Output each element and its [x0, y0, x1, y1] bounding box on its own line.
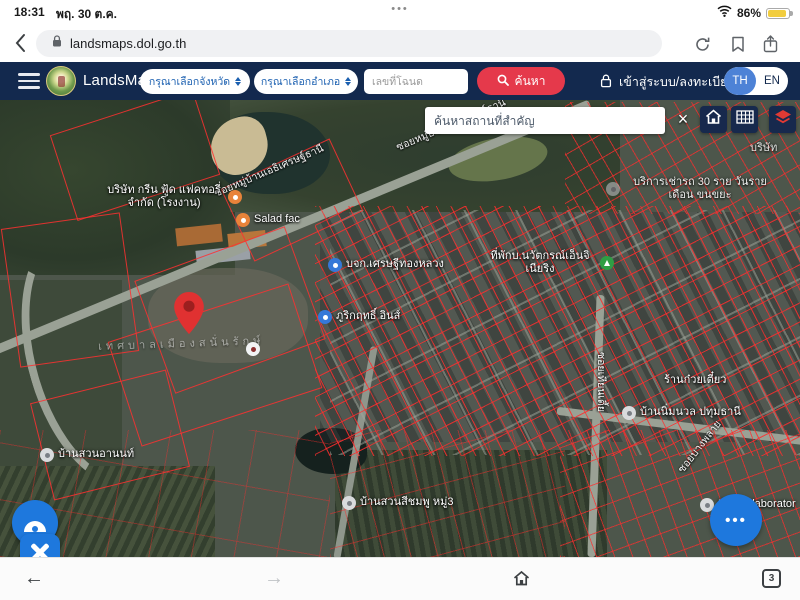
protractor-icon: [24, 521, 46, 532]
restaurant-poi-icon: [236, 213, 250, 227]
layers-icon: [774, 109, 792, 130]
poi-label: ที่พักบ.นวัตกรณ์เอ็นจิเนียริง: [484, 250, 596, 276]
home-extent-button[interactable]: [700, 106, 727, 133]
home-icon: [705, 109, 722, 130]
poi-salad-factory[interactable]: Salad fac: [236, 213, 300, 227]
back-chevron-icon[interactable]: [14, 33, 28, 53]
battery-percent: 86%: [737, 6, 761, 20]
bookmark-icon[interactable]: [728, 34, 748, 54]
lodging-poi-icon: [40, 448, 54, 462]
poi-label: ภูริกฤทธิ์ อินส์: [336, 310, 400, 323]
lodging-poi-icon: [342, 496, 356, 510]
district-select[interactable]: กรุณาเลือกอำเภอ: [254, 69, 358, 94]
poi-label: บจก.เศรษฐีทองหลวง: [346, 258, 444, 271]
poi-label: บริการเช่ารถ 30 ราย วันรายเดือน ขนขยะ: [624, 176, 776, 202]
wifi-icon: [717, 4, 732, 22]
screen: 18:31 พฤ. 30 ต.ค. ••• 86% landsmaps.dol.…: [0, 0, 800, 600]
business-poi-icon: [328, 258, 342, 272]
lang-en-button[interactable]: EN: [756, 67, 788, 95]
status-bar: 18:31 พฤ. 30 ต.ค. ••• 86%: [0, 0, 800, 24]
poi-rental-service[interactable]: บริการเช่ารถ 30 ราย วันรายเดือน ขนขยะ: [606, 176, 776, 202]
park-poi-icon: [600, 256, 614, 270]
grid-view-button[interactable]: [731, 106, 758, 133]
parcel-lines-overlay: [330, 430, 565, 557]
poi-label: บริษัท กรีน ฟู้ด แฟคทอรี่ จำกัด (โรงงาน): [104, 184, 224, 210]
status-time: 18:31: [14, 5, 45, 19]
deed-number-input[interactable]: [364, 69, 468, 94]
restaurant-poi-icon: [228, 190, 242, 204]
status-right-cluster: 86%: [717, 4, 790, 22]
lodging-poi-icon: [622, 406, 636, 420]
lock-icon: [52, 35, 62, 53]
poi-pink-garden-home[interactable]: บ้านสวนสีชมพู หมู่3: [342, 496, 453, 510]
map-canvas[interactable]: ซอยหมู่บ้านเอธิเศรษฐ์ธานี ซอยหมู่บ้านเอธ…: [0, 100, 800, 557]
close-icon[interactable]: ×: [672, 106, 694, 133]
url-text: landsmaps.dol.go.th: [70, 36, 186, 51]
poi-nimnuan-home[interactable]: บ้านนิ่มนวล ปทุมธานี: [622, 406, 741, 420]
more-dots-icon: •••: [725, 512, 747, 529]
nav-home-icon[interactable]: [512, 569, 531, 593]
district-select-label: กรุณาเลือกอำเภอ: [261, 73, 340, 90]
grid-icon: [736, 110, 754, 129]
dol-logo: [46, 66, 76, 96]
sports-poi-icon: [246, 342, 260, 356]
poi-factory[interactable]: บริษัท กรีน ฟู้ด แฟคทอรี่ จำกัด (โรงงาน): [104, 184, 242, 210]
tab-switcher-button[interactable]: 3: [762, 569, 781, 588]
poi-label: ร้านก๋วยเตี๋ยว: [664, 374, 726, 387]
browser-toolbar: landsmaps.dol.go.th: [0, 24, 800, 62]
search-button[interactable]: ค้นหา: [477, 67, 565, 95]
nav-back-icon[interactable]: ←: [24, 567, 44, 589]
poi-label: Salad fac: [254, 213, 300, 226]
login-register-link[interactable]: เข้าสู่ระบบ/ลงทะเบียน: [600, 72, 736, 92]
status-date: พฤ. 30 ต.ค.: [56, 5, 117, 24]
poi-inn[interactable]: ภูริกฤทธิ์ อินส์: [318, 310, 400, 324]
lock-outline-icon: [600, 74, 612, 91]
select-arrows-icon: [235, 77, 241, 87]
search-button-label: ค้นหา: [515, 72, 546, 91]
poi-garden-home[interactable]: บ้านสวนอานนท์: [40, 448, 134, 462]
app-header: LandsMaps กรุณาเลือกจังหวัด กรุณาเลือกอำ…: [0, 62, 800, 100]
parcel-lines-overlay: [560, 430, 800, 557]
select-arrows-icon: [345, 77, 351, 87]
multitask-dots-icon[interactable]: •••: [391, 3, 409, 15]
poi-company-partial: บริษัท: [750, 142, 777, 155]
nav-forward-icon[interactable]: →: [264, 567, 284, 589]
poi-label: บ้านสวนสีชมพู หมู่3: [360, 496, 453, 509]
place-search-input[interactable]: [425, 107, 665, 134]
poi-company[interactable]: บจก.เศรษฐีทองหลวง: [328, 258, 444, 272]
location-pin-icon[interactable]: [174, 292, 204, 334]
url-bar[interactable]: landsmaps.dol.go.th: [36, 30, 662, 57]
more-options-button[interactable]: •••: [710, 494, 762, 546]
layers-button[interactable]: [769, 106, 796, 133]
drawing-tools-button[interactable]: [20, 534, 60, 557]
login-register-label: เข้าสู่ระบบ/ลงทะเบียน: [619, 72, 736, 92]
lang-th-button[interactable]: TH: [724, 67, 756, 95]
refresh-icon[interactable]: [692, 34, 712, 54]
road-label: ซอยเทียนเตี้ย: [593, 352, 610, 412]
business-poi-icon: [318, 310, 332, 324]
poi-engineering-lodge[interactable]: ที่พักบ.นวัตกรณ์เอ็นจิเนียริง: [484, 250, 614, 276]
poi-label: บ้านนิ่มนวล ปทุมธานี: [640, 406, 741, 419]
service-poi-icon: [606, 182, 620, 196]
search-icon: [497, 74, 509, 89]
battery-icon: [766, 8, 790, 19]
share-icon[interactable]: [760, 34, 780, 54]
province-select[interactable]: กรุณาเลือกจังหวัด: [140, 69, 250, 94]
language-toggle: TH EN: [724, 67, 788, 95]
poi-sports[interactable]: [246, 342, 260, 356]
menu-icon[interactable]: [18, 73, 40, 93]
province-select-label: กรุณาเลือกจังหวัด: [149, 73, 230, 90]
poi-label: บ้านสวนอานนท์: [58, 448, 134, 461]
poi-label: บริษัท: [750, 142, 777, 155]
poi-noodle-shop[interactable]: ร้านก๋วยเตี๋ยว: [664, 374, 726, 387]
bottom-navigation-bar: ← → 3: [0, 557, 800, 600]
